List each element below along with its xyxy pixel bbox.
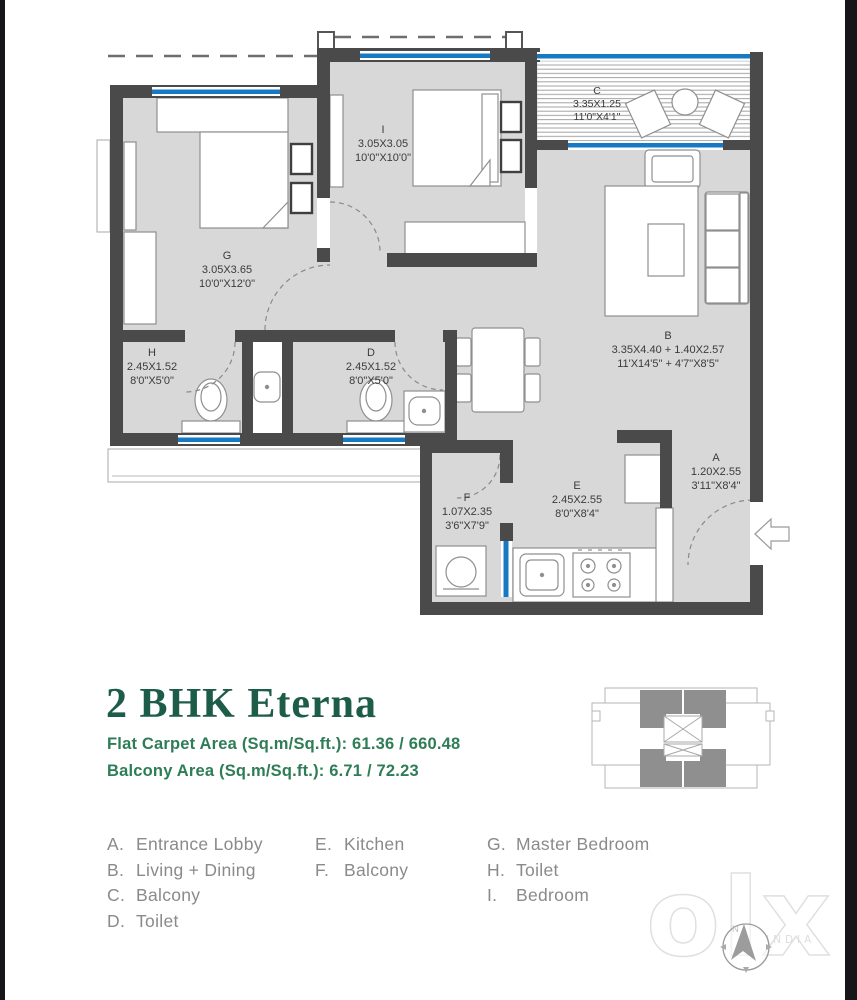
- room-dim-metric: 1.20X2.55: [691, 466, 741, 478]
- legend-label: Toilet: [516, 860, 559, 880]
- legend-column-3: G.Master Bedroom H.Toilet I.Bedroom: [487, 832, 650, 909]
- room-dim-imperial: 11'0"X4'1": [574, 111, 621, 123]
- balcony-area-text: Balcony Area (Sq.m/Sq.ft.): 6.71 / 72.23: [107, 762, 419, 781]
- room-letter: D: [367, 347, 375, 359]
- room-dim-metric: 3.35X1.25: [573, 98, 621, 110]
- room-dim-imperial: 3'11"X8'4": [691, 480, 740, 492]
- compass-north-label: N: [732, 924, 739, 935]
- lobby-cabinet-icon: [656, 508, 673, 602]
- olx-watermark: olx INDIA N: [640, 850, 850, 995]
- room-letter: E: [573, 480, 580, 492]
- sofa-icon: [705, 192, 749, 304]
- watermark-subtext: INDIA: [766, 934, 815, 946]
- legend-key: C.: [107, 883, 136, 909]
- room-letter: A: [712, 452, 720, 464]
- legend-key: E.: [315, 832, 344, 858]
- legend-key: F.: [315, 858, 344, 884]
- bed-second-icon: [413, 90, 501, 186]
- washbasin-passage-icon: [254, 372, 280, 402]
- room-dim-imperial: 8'0"X5'0": [349, 375, 393, 387]
- legend-key: I.: [487, 883, 516, 909]
- washbasin-d-icon: [404, 391, 445, 432]
- legend-item-toilet-h: H.Toilet: [487, 858, 650, 884]
- room-dim-metric: 3.05X3.05: [358, 138, 408, 150]
- armchair-icon: [645, 150, 700, 188]
- sink-icon: [520, 554, 564, 596]
- legend-item-toilet-d: D.Toilet: [107, 909, 263, 935]
- legend-key: D.: [107, 909, 136, 935]
- legend-key: G.: [487, 832, 516, 858]
- carpet-area-text: Flat Carpet Area (Sq.m/Sq.ft.): 61.36 / …: [107, 735, 460, 754]
- legend-label: Bedroom: [516, 885, 589, 905]
- legend-key: B.: [107, 858, 136, 884]
- room-dim-metric: 2.45X2.55: [552, 494, 602, 506]
- legend-item-master-bedroom: G.Master Bedroom: [487, 832, 650, 858]
- legend-key: A.: [107, 832, 136, 858]
- legend-column-2: E.Kitchen F.Balcony: [315, 832, 408, 883]
- room-letter: B: [664, 330, 671, 342]
- legend-label: Master Bedroom: [516, 834, 650, 854]
- room-dim-imperial: 8'0"X5'0": [130, 375, 174, 387]
- room-dim-metric: 3.35X4.40 + 1.40X2.57: [612, 344, 725, 356]
- floor-plan: G 3.05X3.65 10'0"X12'0" I 3.05X3.05 10'0…: [0, 0, 857, 660]
- room-dim-imperial: 3'6"X7'9": [445, 520, 489, 532]
- legend-column-1: A.Entrance Lobby B.Living + Dining C.Bal…: [107, 832, 263, 934]
- legend-label: Living + Dining: [136, 860, 256, 880]
- page: G 3.05X3.65 10'0"X12'0" I 3.05X3.05 10'0…: [0, 0, 857, 1000]
- room-dim-imperial: 10'0"X12'0": [199, 278, 255, 290]
- legend-label: Balcony: [344, 860, 408, 880]
- legend-item-balcony-c: C.Balcony: [107, 883, 263, 909]
- room-letter: G: [223, 250, 232, 262]
- legend-item-entrance-lobby: A.Entrance Lobby: [107, 832, 263, 858]
- legend-item-balcony-f: F.Balcony: [315, 858, 408, 884]
- table-icon: [605, 186, 698, 316]
- legend-label: Entrance Lobby: [136, 834, 263, 854]
- legend-label: Toilet: [136, 911, 179, 931]
- room-letter: F: [464, 492, 471, 504]
- hob-icon: [573, 550, 630, 597]
- fridge-icon: [625, 455, 663, 503]
- room-letter: C: [593, 85, 601, 97]
- keyplan: [588, 683, 778, 795]
- wardrobe2-icon: [405, 222, 525, 255]
- room-dim-imperial: 11'X14'5" + 4'7"X8'5": [617, 358, 719, 370]
- room-letter: H: [148, 347, 156, 359]
- legend-item-bedroom-i: I.Bedroom: [487, 883, 650, 909]
- room-dim-imperial: 10'0"X10'0": [355, 152, 411, 164]
- page-title: 2 BHK Eterna: [106, 680, 377, 728]
- legend-label: Balcony: [136, 885, 200, 905]
- door-leaf-icon: [330, 95, 343, 187]
- room-dim-metric: 2.45X1.52: [127, 361, 177, 373]
- legend-item-living-dining: B.Living + Dining: [107, 858, 263, 884]
- entrance-arrow-icon: [755, 519, 789, 549]
- legend-key: H.: [487, 858, 516, 884]
- room-dim-imperial: 8'0"X8'4": [555, 508, 599, 520]
- dresser-icon: [124, 232, 156, 324]
- room-dim-metric: 1.07X2.35: [442, 506, 492, 518]
- legend-item-kitchen: E.Kitchen: [315, 832, 408, 858]
- room-dim-metric: 3.05X3.65: [202, 264, 252, 276]
- room-dim-metric: 2.45X1.52: [346, 361, 396, 373]
- legend-label: Kitchen: [344, 834, 404, 854]
- washing-machine-icon: [436, 546, 486, 596]
- room-letter: I: [381, 124, 384, 136]
- wardrobe-icon: [124, 142, 136, 230]
